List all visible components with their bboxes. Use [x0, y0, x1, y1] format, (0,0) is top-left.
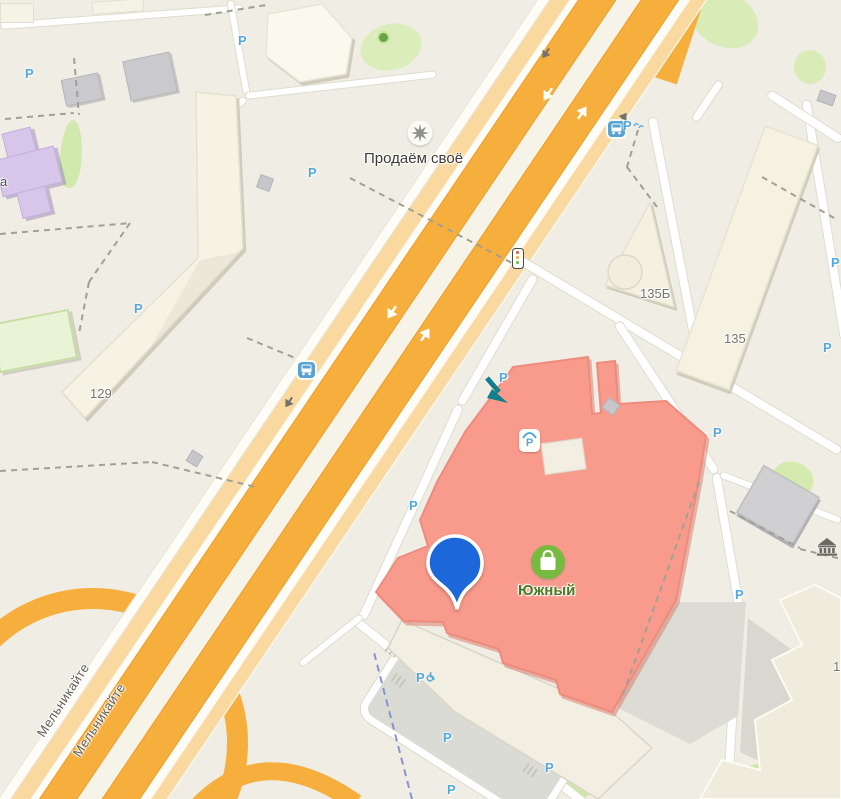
- street-label-cut: а: [0, 174, 7, 189]
- shopping-bag-icon: [531, 545, 565, 579]
- accessible-parking-label[interactable]: P: [416, 670, 435, 685]
- green-bush: [728, 212, 789, 283]
- building-number-129: 129: [90, 386, 112, 401]
- building-number-135: 135: [724, 331, 746, 346]
- road: [198, 95, 249, 140]
- green-bush: [740, 764, 778, 796]
- service-yard: [740, 618, 806, 772]
- building-number-cut: 1: [833, 659, 840, 674]
- parking-label[interactable]: P: [238, 33, 247, 48]
- footpath: [620, 482, 700, 701]
- building-cream-small: [0, 3, 34, 23]
- building-gray-small: [61, 72, 104, 106]
- poi-label-promo[interactable]: Продаём своё: [364, 150, 463, 167]
- footpath: [88, 222, 131, 282]
- building-purple: [0, 120, 73, 229]
- kiosk: [816, 89, 836, 106]
- canopy-parking-label[interactable]: P: [623, 118, 645, 133]
- traffic-light-icon: [512, 248, 524, 269]
- parking-label[interactable]: P: [499, 370, 508, 385]
- kiosk: [602, 397, 621, 416]
- kiosk: [256, 174, 274, 192]
- parking-label[interactable]: P: [308, 165, 317, 180]
- poi-label-mall[interactable]: Южный: [518, 582, 575, 599]
- footpath: [5, 112, 74, 120]
- parking-label[interactable]: P: [545, 760, 554, 775]
- parking-label[interactable]: P: [713, 425, 722, 440]
- tree-icon: [377, 31, 390, 44]
- mall-courtyard: [541, 438, 586, 474]
- green-patch: [794, 50, 826, 84]
- map-canvas[interactable]: P P P P P P P P P P P P P P P P: [0, 0, 841, 799]
- building-number-135b: 135Б: [640, 286, 670, 301]
- parking-label[interactable]: P: [831, 255, 840, 270]
- parking-label[interactable]: P: [823, 340, 832, 355]
- footpath: [800, 548, 841, 560]
- bus-stop-icon[interactable]: [298, 362, 315, 378]
- sports-field: [0, 309, 78, 373]
- parking-label[interactable]: P: [447, 782, 456, 797]
- building-gray-small: [122, 51, 177, 101]
- footpath: [78, 282, 90, 334]
- road: [722, 606, 744, 799]
- parking-label[interactable]: P: [25, 66, 34, 81]
- parking-lot: [355, 645, 580, 799]
- parking-label[interactable]: P: [409, 498, 418, 513]
- parking-label[interactable]: P: [134, 301, 143, 316]
- parking-label[interactable]: P: [443, 730, 452, 745]
- parking-label[interactable]: P: [735, 587, 744, 602]
- footpath: [730, 510, 801, 549]
- covered-parking-badge[interactable]: P: [519, 429, 540, 452]
- building-white: [266, 4, 352, 82]
